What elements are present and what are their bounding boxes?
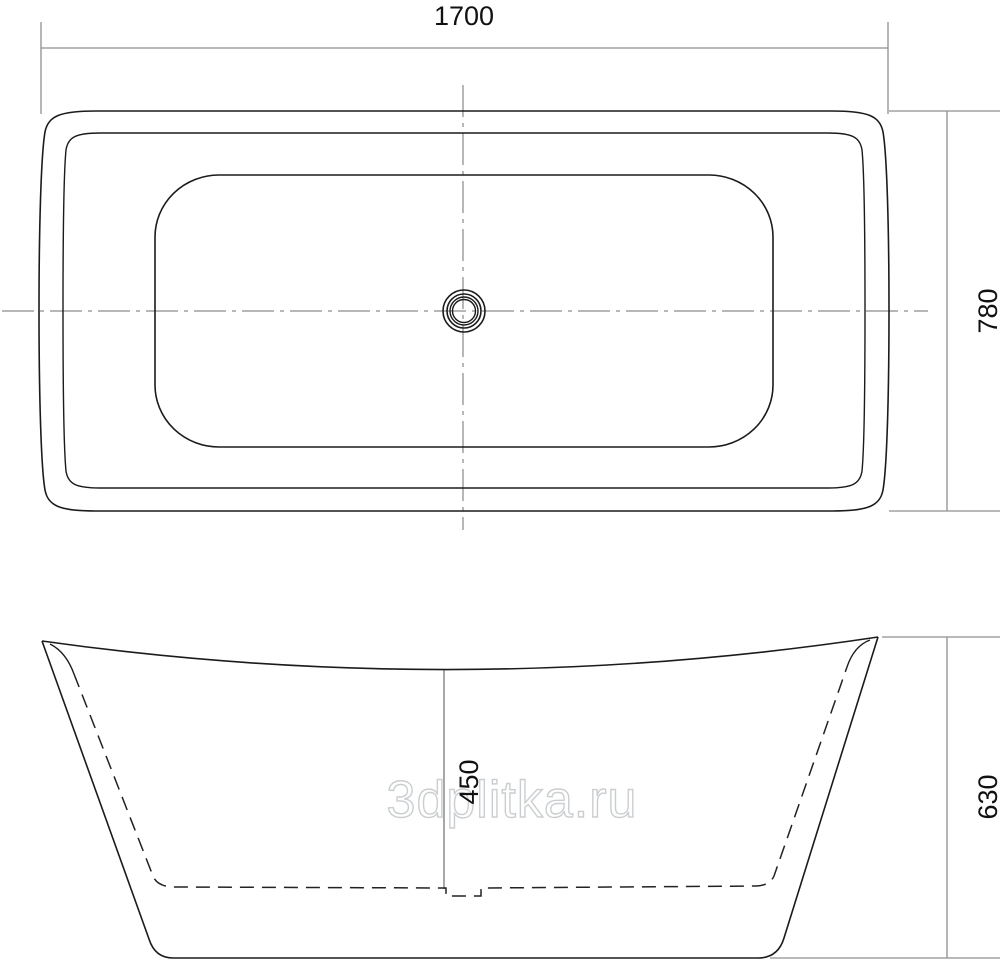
- rim-inner-lip-right: [847, 640, 870, 667]
- dimension-label-1700: 1700: [434, 1, 494, 31]
- bathtub-technical-drawing: 3dplitka.ru 1700 780 450 630: [0, 0, 1000, 962]
- dimension-label-780: 780: [973, 288, 1000, 333]
- centerlines: [2, 85, 928, 530]
- dimension-label-450: 450: [454, 759, 484, 804]
- dimension-label-630: 630: [973, 774, 1000, 819]
- dimension-labels: 1700 780 450 630: [434, 1, 1000, 820]
- tub-rim-profile: [42, 637, 878, 670]
- rim-inner-lip-left: [50, 644, 74, 674]
- watermark-text: 3dplitka.ru: [387, 771, 638, 829]
- drawing-canvas: 3dplitka.ru 1700 780 450 630: [0, 0, 1000, 962]
